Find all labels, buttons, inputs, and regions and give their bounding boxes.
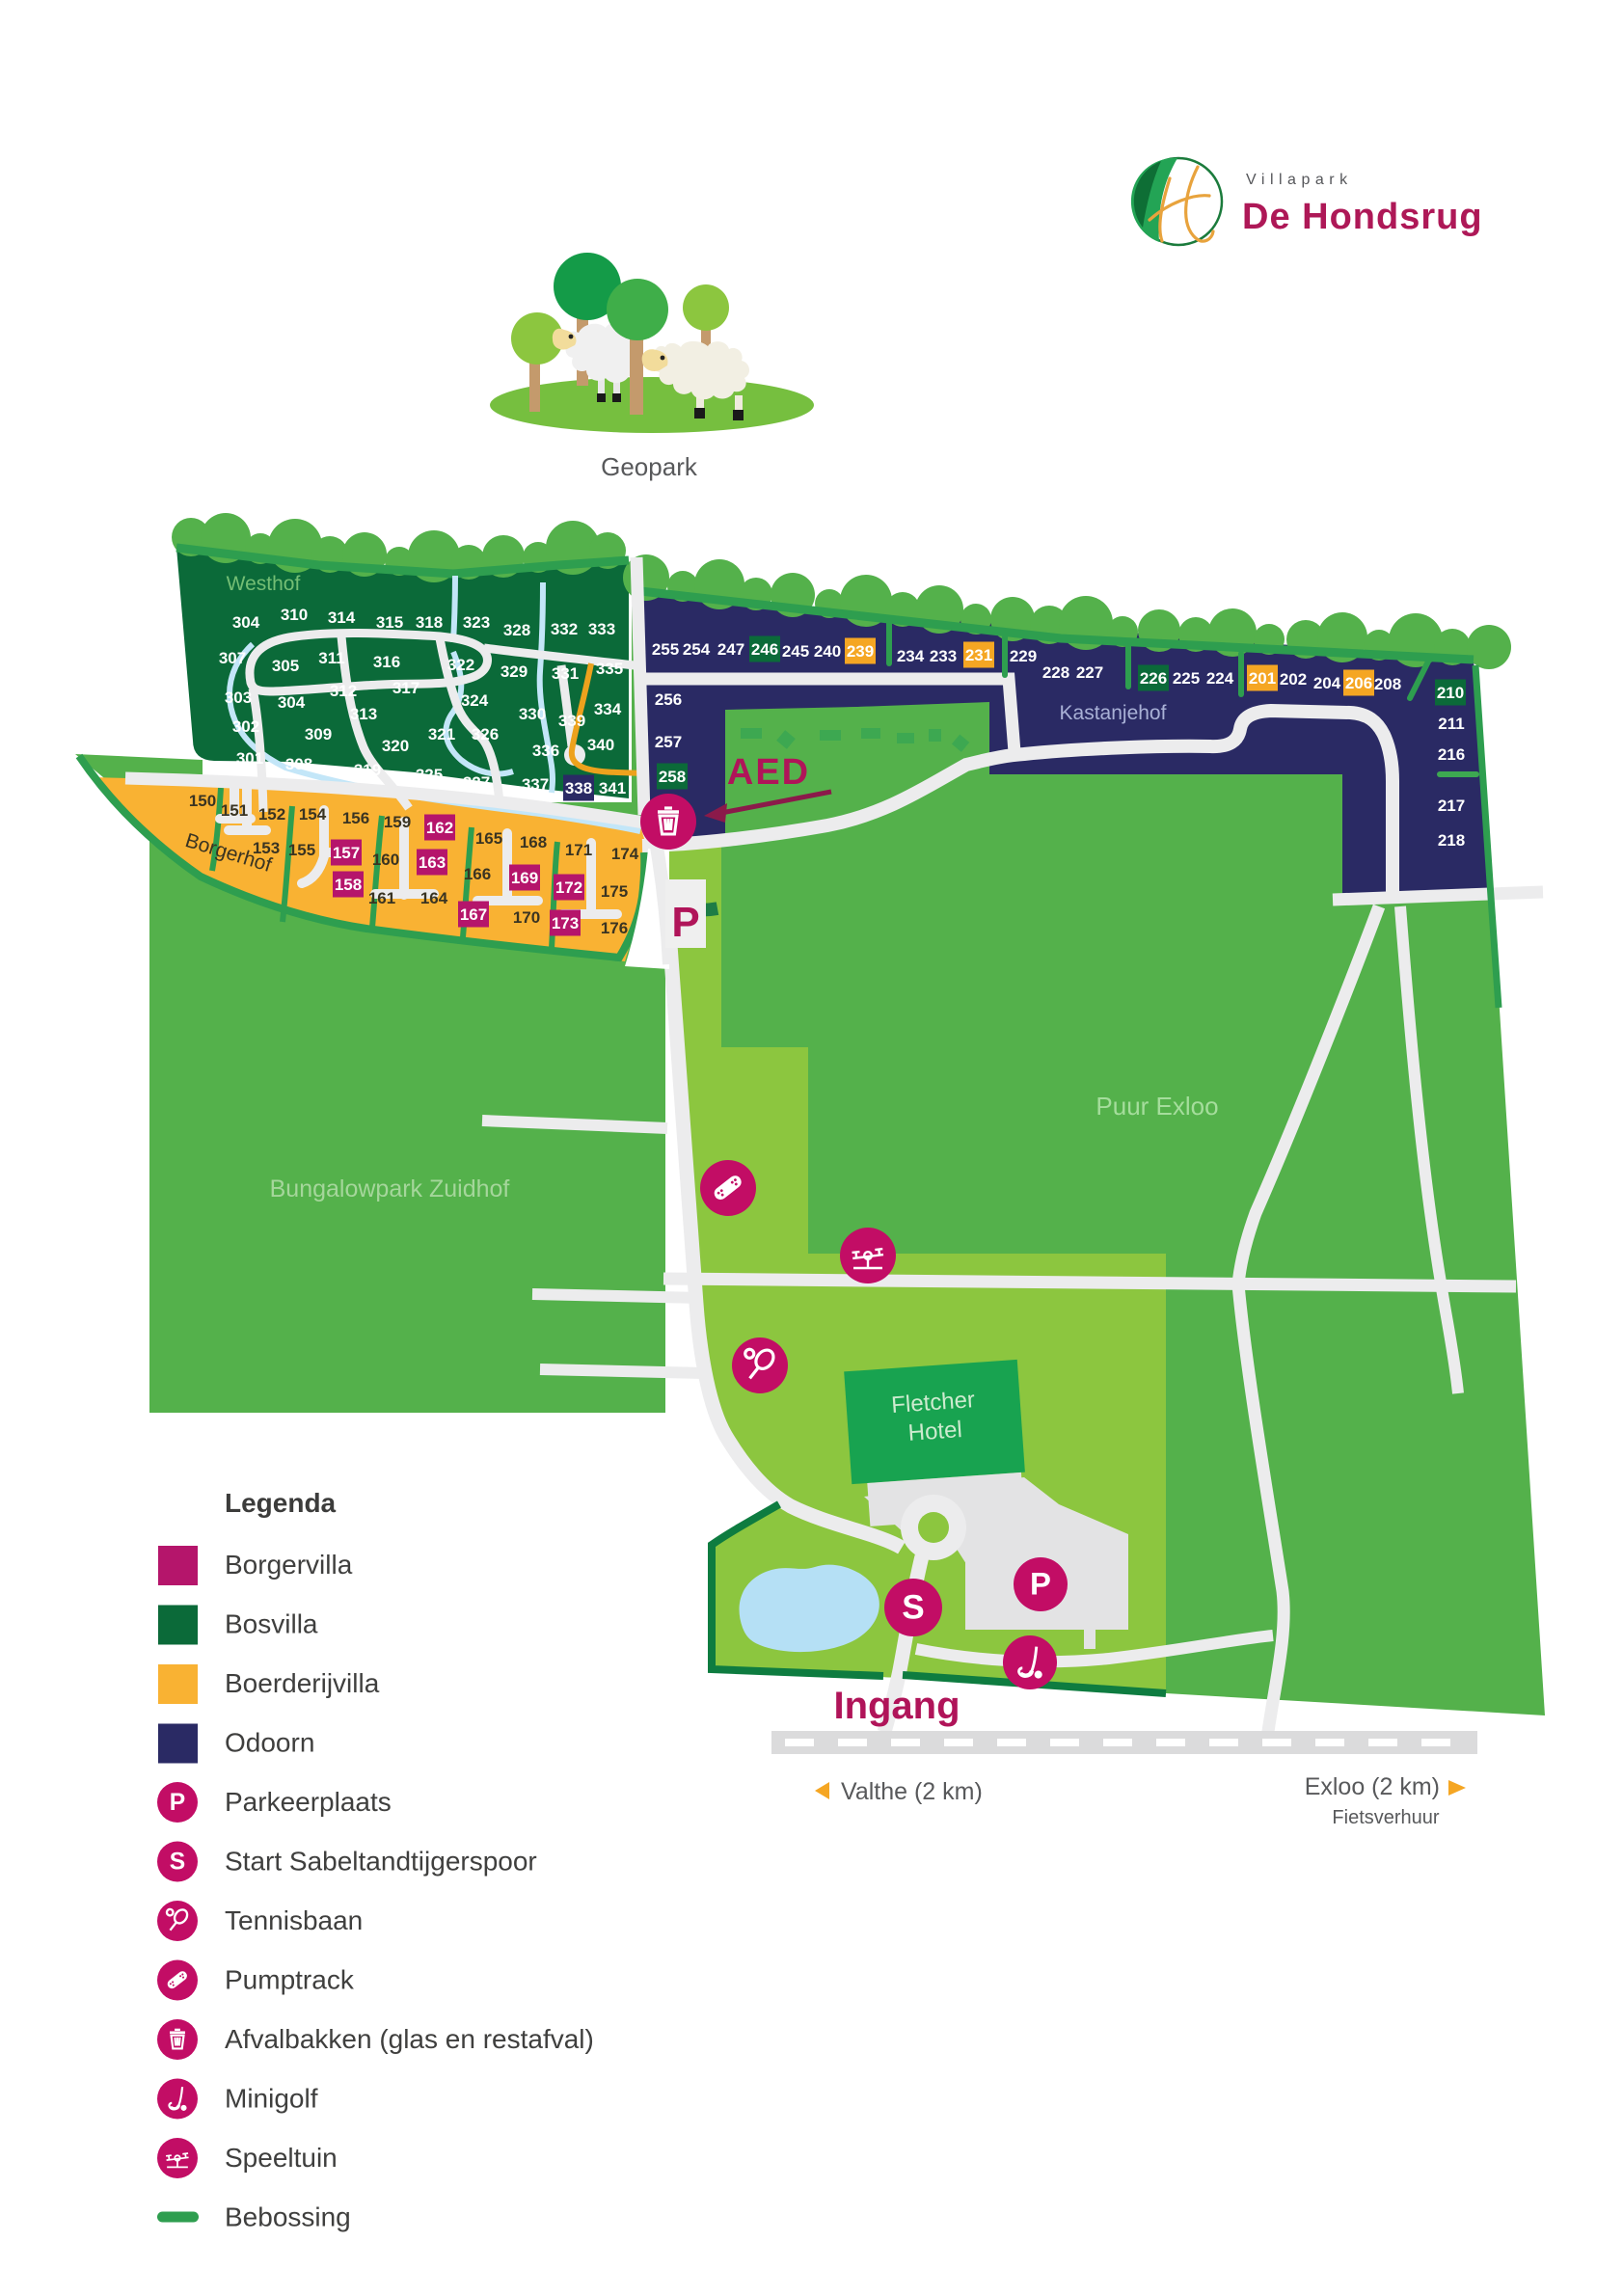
svg-text:319: 319	[354, 761, 381, 779]
svg-text:332: 332	[551, 620, 578, 638]
svg-text:P: P	[671, 899, 699, 946]
svg-text:240: 240	[814, 642, 841, 661]
svg-text:157: 157	[333, 844, 360, 862]
svg-text:337: 337	[522, 775, 549, 794]
svg-text:De Hondsrug: De Hondsrug	[1242, 197, 1483, 237]
svg-text:254: 254	[683, 640, 711, 659]
svg-text:168: 168	[520, 833, 547, 851]
svg-text:323: 323	[463, 613, 490, 632]
svg-text:334: 334	[594, 700, 622, 718]
svg-text:304: 304	[232, 613, 260, 632]
svg-text:231: 231	[965, 646, 992, 664]
svg-text:Ingang: Ingang	[833, 1685, 960, 1727]
svg-text:176: 176	[601, 919, 628, 937]
svg-text:308: 308	[285, 755, 312, 773]
svg-text:Kastanjehof: Kastanjehof	[1060, 702, 1167, 724]
svg-text:Minigolf: Minigolf	[225, 2084, 318, 2114]
svg-text:Borgervilla: Borgervilla	[225, 1550, 353, 1580]
svg-text:164: 164	[420, 889, 448, 907]
svg-text:S: S	[902, 1588, 924, 1626]
svg-text:158: 158	[335, 876, 362, 894]
svg-text:246: 246	[751, 640, 778, 659]
svg-text:233: 233	[930, 647, 957, 665]
svg-text:Hotel: Hotel	[907, 1417, 963, 1446]
svg-text:152: 152	[258, 805, 285, 824]
svg-text:167: 167	[460, 905, 487, 924]
svg-text:258: 258	[659, 768, 686, 786]
svg-text:P: P	[1030, 1566, 1051, 1602]
svg-text:307: 307	[219, 649, 246, 667]
svg-text:169: 169	[511, 869, 538, 887]
svg-text:247: 247	[717, 640, 744, 659]
svg-text:204: 204	[1313, 674, 1341, 692]
svg-text:Parkeerplaats: Parkeerplaats	[225, 1787, 392, 1817]
svg-text:211: 211	[1438, 715, 1464, 733]
svg-text:172: 172	[555, 878, 582, 897]
svg-text:Fietsverhuur: Fietsverhuur	[1332, 1807, 1439, 1828]
svg-text:310: 310	[281, 606, 308, 624]
svg-text:234: 234	[897, 647, 925, 665]
svg-text:Exloo (2 km): Exloo (2 km)	[1305, 1773, 1440, 1800]
svg-text:224: 224	[1206, 669, 1234, 688]
svg-text:P: P	[170, 1790, 185, 1816]
svg-text:331: 331	[552, 664, 579, 683]
svg-text:210: 210	[1437, 684, 1464, 702]
svg-text:303: 303	[225, 689, 252, 707]
svg-text:201: 201	[1249, 669, 1276, 688]
svg-text:239: 239	[847, 642, 874, 661]
svg-text:317: 317	[392, 679, 419, 697]
svg-text:175: 175	[601, 882, 628, 901]
svg-text:339: 339	[558, 712, 585, 730]
svg-text:Geopark: Geopark	[601, 452, 698, 481]
svg-text:Afvalbakken (glas en restafval: Afvalbakken (glas en restafval)	[225, 2024, 594, 2054]
svg-text:Start Sabeltandtijgerspoor: Start Sabeltandtijgerspoor	[225, 1847, 537, 1877]
svg-text:316: 316	[373, 653, 400, 671]
svg-text:154: 154	[299, 805, 327, 824]
svg-text:225: 225	[1173, 669, 1200, 688]
svg-text:314: 314	[328, 608, 356, 627]
svg-text:159: 159	[384, 813, 411, 831]
svg-text:Speeltuin: Speeltuin	[225, 2143, 338, 2173]
svg-text:163: 163	[419, 853, 446, 872]
svg-text:Westhof: Westhof	[227, 573, 301, 595]
svg-text:325: 325	[416, 766, 443, 784]
svg-text:329: 329	[500, 662, 527, 681]
svg-text:S: S	[170, 1849, 185, 1875]
svg-text:326: 326	[472, 725, 499, 743]
svg-text:156: 156	[342, 809, 369, 827]
svg-text:336: 336	[532, 742, 559, 760]
svg-text:160: 160	[372, 851, 399, 869]
svg-text:Puur Exloo: Puur Exloo	[1096, 1092, 1218, 1121]
svg-text:321: 321	[428, 725, 455, 743]
svg-text:Tennisbaan: Tennisbaan	[225, 1905, 363, 1935]
svg-text:227: 227	[1076, 663, 1103, 682]
svg-text:341: 341	[599, 779, 626, 797]
svg-text:AED: AED	[727, 752, 810, 793]
svg-text:335: 335	[596, 660, 623, 678]
svg-text:Bebossing: Bebossing	[225, 2202, 351, 2232]
svg-text:245: 245	[782, 642, 809, 661]
svg-text:330: 330	[519, 705, 546, 723]
svg-text:304: 304	[278, 693, 306, 712]
svg-text:155: 155	[288, 841, 315, 859]
svg-text:Villapark: Villapark	[1246, 172, 1353, 188]
svg-text:170: 170	[513, 908, 540, 927]
svg-text:328: 328	[503, 621, 530, 639]
svg-text:312: 312	[330, 682, 357, 700]
svg-text:324: 324	[461, 691, 489, 710]
svg-text:Boerderijvilla: Boerderijvilla	[225, 1668, 380, 1698]
svg-text:257: 257	[655, 733, 682, 751]
svg-text:318: 318	[416, 613, 443, 632]
svg-text:217: 217	[1438, 797, 1465, 815]
svg-text:151: 151	[221, 801, 248, 820]
svg-text:333: 333	[588, 620, 615, 638]
svg-text:Pumptrack: Pumptrack	[225, 1965, 355, 1995]
svg-text:Bosvilla: Bosvilla	[225, 1609, 318, 1639]
svg-text:322: 322	[447, 656, 474, 674]
svg-text:340: 340	[587, 736, 614, 754]
svg-text:229: 229	[1010, 647, 1037, 665]
svg-text:150: 150	[189, 792, 216, 810]
svg-text:174: 174	[611, 845, 639, 863]
svg-text:302: 302	[232, 717, 259, 736]
svg-text:171: 171	[565, 841, 592, 859]
svg-text:255: 255	[652, 640, 679, 659]
svg-text:162: 162	[426, 819, 453, 837]
svg-text:320: 320	[382, 737, 409, 755]
svg-text:313: 313	[350, 705, 377, 723]
svg-text:173: 173	[552, 914, 579, 932]
svg-text:327: 327	[463, 773, 490, 792]
svg-text:161: 161	[368, 889, 395, 907]
svg-text:226: 226	[1140, 669, 1167, 688]
svg-text:166: 166	[464, 865, 491, 883]
svg-text:165: 165	[475, 829, 502, 848]
svg-text:228: 228	[1042, 663, 1069, 682]
svg-text:Valthe (2 km): Valthe (2 km)	[841, 1778, 983, 1805]
svg-text:208: 208	[1374, 675, 1401, 693]
svg-text:311: 311	[318, 649, 344, 667]
svg-text:206: 206	[1345, 674, 1372, 692]
svg-text:Legenda: Legenda	[225, 1488, 337, 1518]
svg-text:338: 338	[565, 779, 592, 797]
svg-text:153: 153	[253, 839, 280, 857]
svg-text:305: 305	[272, 657, 299, 675]
svg-text:216: 216	[1438, 745, 1465, 764]
svg-text:Odoorn: Odoorn	[225, 1728, 314, 1758]
svg-text:309: 309	[305, 725, 332, 743]
svg-text:315: 315	[376, 613, 403, 632]
svg-text:218: 218	[1438, 831, 1465, 850]
svg-text:301: 301	[236, 749, 263, 768]
svg-text:202: 202	[1280, 670, 1307, 689]
svg-text:256: 256	[655, 690, 682, 709]
svg-text:Bungalowpark Zuidhof: Bungalowpark Zuidhof	[270, 1175, 510, 1202]
